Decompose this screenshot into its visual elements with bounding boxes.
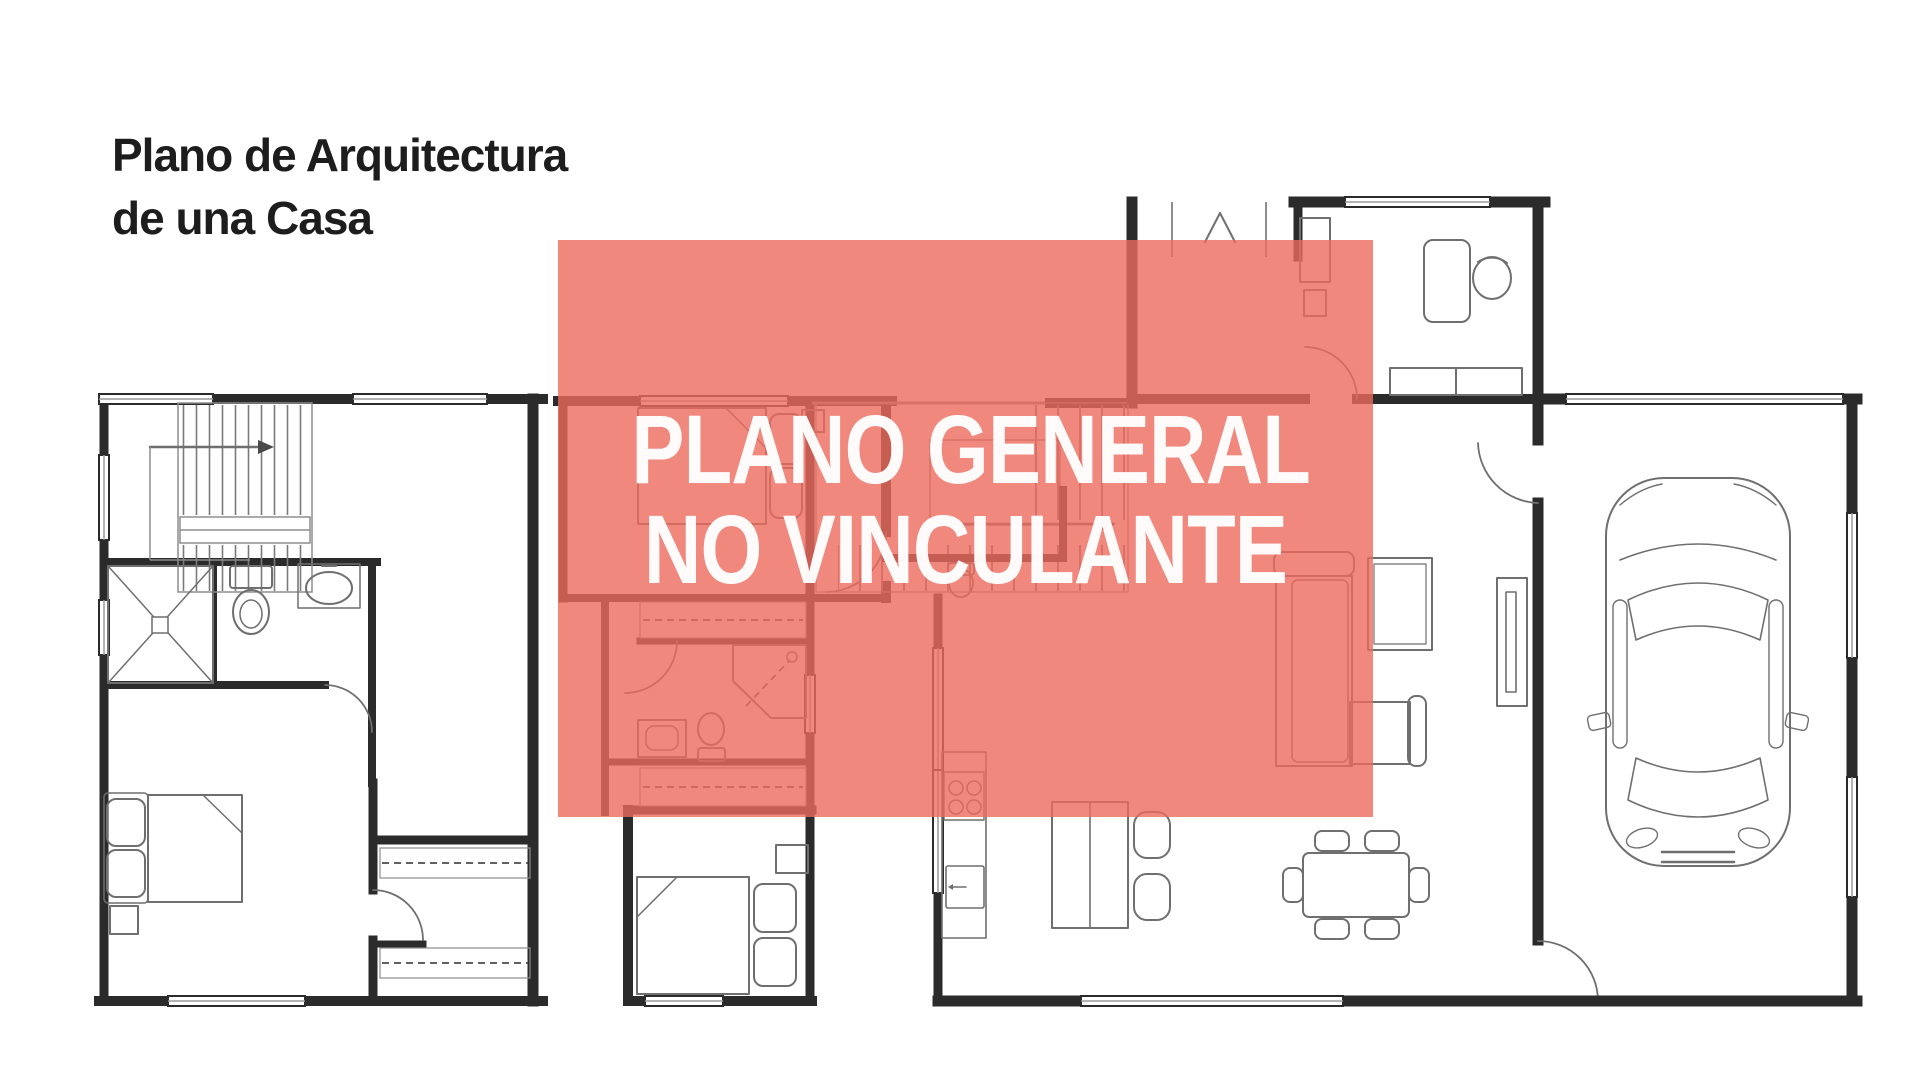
- tv-cabinet-symbol: [1497, 578, 1527, 706]
- chair-symbol: [1283, 868, 1303, 902]
- watermark-text: PLANO GENERAL NO VINCULANTE: [558, 400, 1373, 600]
- door-arc-icon: [1538, 941, 1598, 1001]
- floor-plan-page: Plano de Arquitectura de una Casa PLANO …: [0, 0, 1920, 1080]
- bed-symbol: [104, 793, 242, 903]
- watermark-overlay: PLANO GENERAL NO VINCULANTE: [558, 240, 1373, 817]
- chair-symbol: [1365, 831, 1399, 851]
- car-symbol: [1587, 478, 1809, 866]
- wardrobe-symbol: [380, 848, 530, 878]
- window-icon: [168, 996, 305, 1006]
- door-arc-icon: [325, 685, 372, 732]
- chair-symbol: [1409, 868, 1429, 902]
- door-arc-icon: [1478, 443, 1538, 503]
- page-title-line2: de una Casa: [112, 187, 567, 250]
- desk-symbol: [1424, 240, 1470, 322]
- bedroom-middle-bottom: [637, 845, 808, 994]
- window-icon: [99, 455, 109, 540]
- window-icon: [645, 996, 723, 1006]
- chair-symbol: [1315, 831, 1349, 851]
- chair-symbol: [1315, 919, 1349, 939]
- stool-symbol: [1134, 812, 1170, 858]
- window-icon: [1847, 777, 1857, 897]
- window-icon: [1566, 394, 1843, 404]
- sideboard-symbol: [1390, 368, 1522, 395]
- shower-icon: [108, 566, 213, 683]
- closet-corridor-left: [380, 848, 530, 978]
- office-chair-symbol: [1473, 257, 1511, 299]
- entrance-canopy-icon: [1205, 213, 1235, 242]
- page-title-line1: Plano de Arquitectura: [112, 124, 567, 187]
- chair-symbol: [1365, 919, 1399, 939]
- kitchen-island-symbol: [1052, 802, 1128, 928]
- stool-symbol: [1134, 874, 1170, 920]
- window-icon: [1345, 197, 1490, 207]
- window-icon: [1847, 513, 1857, 658]
- garage: [1538, 394, 1857, 1001]
- watermark-line1: PLANO GENERAL: [631, 400, 1299, 500]
- page-title: Plano de Arquitectura de una Casa: [112, 124, 567, 250]
- door-arc-icon: [373, 890, 423, 940]
- coffee-table-symbol: [1368, 558, 1432, 650]
- nightstand-symbol: [110, 906, 138, 934]
- dining-area: [1283, 831, 1429, 939]
- watermark-line2: NO VINCULANTE: [631, 500, 1299, 600]
- nightstand-symbol: [776, 845, 808, 873]
- window-icon: [1081, 996, 1343, 1006]
- dining-table-symbol: [1303, 853, 1409, 917]
- left-house-walls: [99, 399, 543, 1001]
- bed-symbol: [637, 877, 796, 994]
- fridge-icon: [946, 866, 984, 908]
- window-icon: [353, 394, 487, 404]
- wardrobe-symbol: [380, 948, 530, 978]
